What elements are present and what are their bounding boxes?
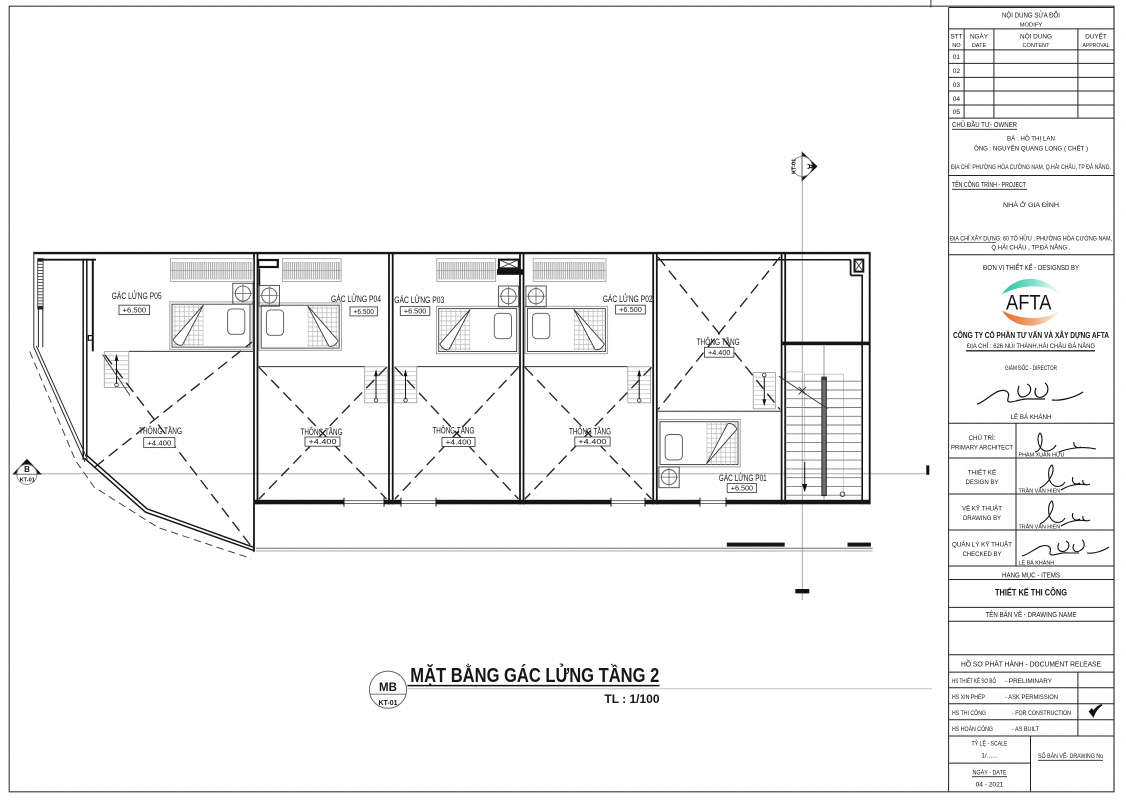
svg-text:AFTA: AFTA: [1006, 292, 1052, 315]
svg-text:PHẠM XUÂN HỮU: PHẠM XUÂN HỮU: [1019, 451, 1065, 458]
svg-text:THÔNG TẦNG: THÔNG TẦNG: [432, 426, 474, 436]
svg-text:CONTENT: CONTENT: [1022, 43, 1050, 49]
svg-text:+4.400: +4.400: [147, 439, 171, 448]
svg-text:NGÀY - DATE: NGÀY - DATE: [973, 768, 1007, 777]
svg-text:DUYỆT: DUYỆT: [1085, 32, 1107, 41]
svg-text:TRẦN VĂN HIỂN: TRẦN VĂN HIỂN: [1019, 523, 1061, 530]
svg-text:02: 02: [953, 68, 961, 75]
svg-text:APPROVAL: APPROVAL: [1083, 43, 1110, 49]
svg-text:GÁC LỬNG P01: GÁC LỬNG P01: [719, 472, 767, 483]
svg-text:KT-01: KT-01: [378, 700, 397, 707]
svg-text:+4.400: +4.400: [446, 437, 472, 446]
svg-text:01: 01: [953, 54, 961, 61]
svg-text:NO: NO: [952, 43, 961, 49]
svg-text:CHỦ TRÌ:: CHỦ TRÌ:: [969, 433, 996, 442]
svg-text:KT-01: KT-01: [20, 478, 35, 484]
svg-text:B: B: [24, 465, 30, 474]
svg-text:+6.500: +6.500: [354, 307, 374, 316]
svg-text:THÔNG TẦNG: THÔNG TẦNG: [569, 427, 611, 437]
svg-text:NỘI DUNG: NỘI DUNG: [1020, 32, 1052, 41]
svg-text:STT: STT: [950, 34, 962, 41]
svg-text:THÔNG TẦNG: THÔNG TẦNG: [301, 427, 343, 437]
svg-text:GÁC LỬNG P02: GÁC LỬNG P02: [603, 293, 653, 304]
svg-text:QUẢN LÝ KỸ THUẬT: QUẢN LÝ KỸ THUẬT: [952, 540, 1012, 549]
svg-text:HS THI CÔNG: HS THI CÔNG: [952, 710, 986, 717]
svg-text:DRAWING BY: DRAWING BY: [963, 516, 1001, 522]
svg-text:HS HOÀN CÔNG: HS HOÀN CÔNG: [952, 726, 993, 733]
svg-text:VẼ KỸ THUẬT: VẼ KỸ THUẬT: [962, 504, 1002, 513]
svg-text:+4.400: +4.400: [309, 437, 337, 446]
svg-text:04 - 2021: 04 - 2021: [976, 782, 1004, 789]
svg-text:TÊN CÔNG TRÌNH - PROJECT: TÊN CÔNG TRÌNH - PROJECT: [952, 180, 1026, 189]
svg-text:+6.500: +6.500: [619, 305, 642, 314]
svg-text:ĐỊA CHỈ: PHƯỜNG HÒA CƯỜNG NAM: ĐỊA CHỈ: PHƯỜNG HÒA CƯỜNG NAM, Q.HẢI CHÂ…: [951, 164, 1111, 171]
svg-text:HS THIẾT KẾ SƠ BỘ: HS THIẾT KẾ SƠ BỘ: [952, 678, 996, 685]
svg-text:HẠNG MỤC - ITEMS: HẠNG MỤC - ITEMS: [1002, 570, 1060, 579]
svg-text:TRẦN VĂN HIỂN: TRẦN VĂN HIỂN: [1019, 487, 1061, 494]
svg-text:NGÀY: NGÀY: [970, 32, 989, 41]
svg-text:PRIMARY ARCHITECT: PRIMARY ARCHITECT: [951, 446, 1013, 452]
svg-text:+4.400: +4.400: [708, 348, 730, 357]
svg-text:DESIGN BY: DESIGN BY: [966, 480, 999, 486]
svg-text:+4.400: +4.400: [578, 437, 606, 446]
svg-text:ĐỊA CHỈ : 626 NÚI THÀNH,HẢI CH: ĐỊA CHỈ : 626 NÚI THÀNH,HẢI CHÂU ĐÀ NẴNG: [967, 341, 1095, 350]
svg-text:04: 04: [953, 96, 961, 103]
svg-text:KT-01: KT-01: [792, 159, 798, 174]
svg-text:+6.500: +6.500: [404, 306, 427, 315]
svg-text:+6.500: +6.500: [123, 306, 147, 315]
svg-text:THÔNG TẦNG: THÔNG TẦNG: [697, 337, 740, 347]
svg-text:- PRELIMINARY: - PRELIMINARY: [1005, 678, 1052, 685]
svg-text:GÁC LỬNG P03: GÁC LỬNG P03: [394, 294, 444, 305]
svg-text:HS XIN PHÉP: HS XIN PHÉP: [952, 694, 985, 701]
svg-text:LÊ BÁ KHÁNH: LÊ BÁ KHÁNH: [1011, 413, 1052, 421]
svg-text:TÊN BẢN VẼ - DRAWING NAME: TÊN BẢN VẼ - DRAWING NAME: [986, 610, 1077, 619]
svg-text:THIẾT KẾ THI CÔNG: THIẾT KẾ THI CÔNG: [995, 587, 1067, 598]
svg-text:NỘI DUNG SỬA ĐỔI: NỘI DUNG SỬA ĐỔI: [1002, 11, 1060, 20]
svg-text:MẶT BẰNG GÁC LỬNG TẦNG 2: MẶT BẰNG GÁC LỬNG TẦNG 2: [410, 663, 659, 687]
svg-text:GÁC LỬNG P04: GÁC LỬNG P04: [331, 293, 381, 304]
svg-text:- AS BUILT: - AS BUILT: [1012, 726, 1039, 733]
svg-text:ĐỊA CHỈ XÂY DỰNG: 60 TỐ HỮU ,: ĐỊA CHỈ XÂY DỰNG: 60 TỐ HỮU , PHƯỜNG HÒA…: [950, 236, 1112, 243]
svg-text:CHỦ ĐẦU TƯ- OWNER: CHỦ ĐẦU TƯ- OWNER: [952, 119, 1017, 129]
svg-text:MB: MB: [379, 682, 397, 694]
svg-text:BÀ : HỒ THỊ LAN: BÀ : HỒ THỊ LAN: [1007, 136, 1055, 143]
svg-text:TL : 1/100: TL : 1/100: [604, 692, 659, 706]
svg-text:- ASK PERMISSION: - ASK PERMISSION: [1005, 694, 1058, 701]
svg-text:NHÀ Ở GIA ĐÌNH: NHÀ Ở GIA ĐÌNH: [1003, 202, 1059, 209]
svg-text:DATE: DATE: [972, 43, 987, 49]
svg-text:- FOR CONSTRUCTION: - FOR CONSTRUCTION: [1012, 710, 1071, 717]
svg-text:THÔNG TẦNG: THÔNG TẦNG: [139, 426, 182, 436]
svg-text:ÔNG : NGUYỄN QUANG LONG ( CHẾT: ÔNG : NGUYỄN QUANG LONG ( CHẾT ): [974, 146, 1088, 153]
svg-text:Q.HẢI CHÂU , TP.ĐÀ NẴNG .: Q.HẢI CHÂU , TP.ĐÀ NẴNG .: [991, 245, 1070, 252]
svg-text:05: 05: [953, 109, 961, 116]
svg-text:MODIFY: MODIFY: [1020, 22, 1043, 28]
svg-text:A: A: [805, 164, 814, 170]
svg-text:CÔNG TY CỔ PHẦN TƯ VẤN VÀ XÂY: CÔNG TY CỔ PHẦN TƯ VẤN VÀ XÂY DỰNG AFTA: [953, 330, 1109, 340]
svg-text:1/......: 1/......: [981, 753, 998, 760]
svg-text:CHECKED BY: CHECKED BY: [962, 552, 1001, 558]
svg-text:TỶ LỆ - SCALE: TỶ LỆ - SCALE: [972, 738, 1008, 747]
svg-text:GÁC LỬNG P05: GÁC LỬNG P05: [112, 290, 162, 301]
svg-text:+6.500: +6.500: [731, 483, 753, 492]
svg-text:LÊ BÁ KHÁNH: LÊ BÁ KHÁNH: [1019, 558, 1055, 566]
svg-text:HỒ SƠ PHÁT HÀNH - DOCUMENT REL: HỒ SƠ PHÁT HÀNH - DOCUMENT RELEASE: [961, 659, 1101, 669]
svg-text:03: 03: [953, 82, 961, 89]
